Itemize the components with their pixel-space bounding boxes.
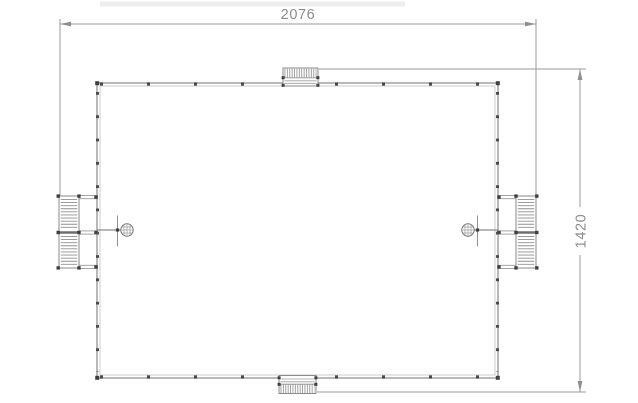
step-post xyxy=(278,376,281,379)
pipe-joint xyxy=(116,228,119,231)
wall-anchor xyxy=(497,231,500,234)
corner-post xyxy=(95,376,99,380)
ladder-post xyxy=(535,231,538,234)
ladder-post xyxy=(514,231,517,234)
ladder-right xyxy=(497,194,538,269)
ladder-post xyxy=(57,231,60,234)
wall-anchor xyxy=(94,231,97,234)
step-post xyxy=(314,376,317,379)
pipe-joint xyxy=(476,228,479,231)
wall-anchor xyxy=(94,195,97,198)
step-post xyxy=(282,76,285,79)
step-post xyxy=(282,84,285,87)
plan-drawing-canvas: 2076 1420 xyxy=(0,0,638,403)
step-post xyxy=(316,76,319,79)
step-post xyxy=(278,383,281,386)
wall-anchor xyxy=(497,265,500,268)
entry-step-top xyxy=(282,68,320,87)
wall-anchor xyxy=(497,195,500,198)
dimension-arrow-icon xyxy=(60,22,71,27)
ladder-post xyxy=(535,266,538,269)
dimension-arrow-icon xyxy=(578,381,583,392)
ladder-post xyxy=(77,266,80,269)
dimension-arrow-icon xyxy=(525,22,536,27)
ladder-post xyxy=(514,194,517,197)
ladder-post xyxy=(77,194,80,197)
height-dimension-label: 1420 xyxy=(574,214,590,249)
step-post xyxy=(316,84,319,87)
ladder-left xyxy=(57,194,98,269)
entry-step-bottom xyxy=(278,376,318,394)
ladder-post xyxy=(57,266,60,269)
width-dimension-label: 2076 xyxy=(281,7,316,23)
ladder-post xyxy=(535,194,538,197)
top-edge-artifact xyxy=(100,2,405,7)
corner-post xyxy=(496,376,500,380)
outer-frame xyxy=(97,83,498,378)
wall-anchor xyxy=(94,265,97,268)
pool-outline xyxy=(95,81,500,380)
plan-drawing-svg: 2076 1420 xyxy=(0,0,638,403)
ladder-post xyxy=(57,194,60,197)
height-dimension-label-group: 1420 xyxy=(571,207,590,255)
corner-post xyxy=(496,81,500,85)
corner-post xyxy=(95,81,99,85)
dimension-arrow-icon xyxy=(578,69,583,80)
ladder-post xyxy=(514,266,517,269)
step-post xyxy=(314,383,317,386)
ladder-post xyxy=(77,231,80,234)
